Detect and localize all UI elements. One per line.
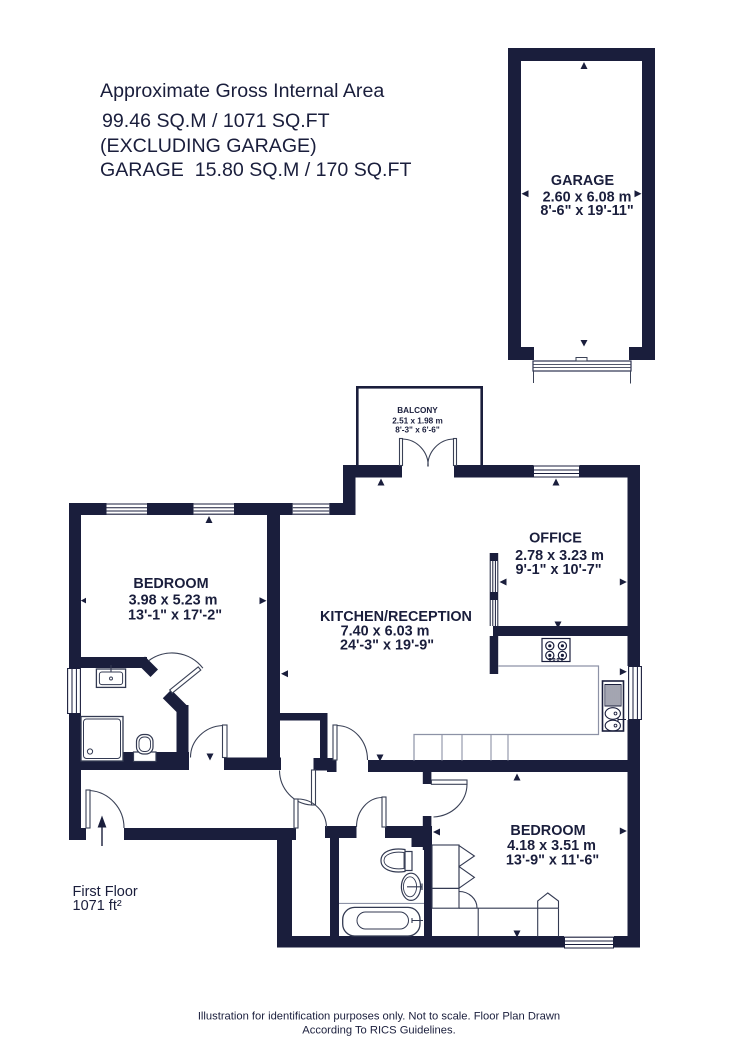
svg-text:1071 ft²: 1071 ft² bbox=[73, 898, 122, 914]
svg-text:13'-1" x 17'-2": 13'-1" x 17'-2" bbox=[128, 608, 222, 624]
svg-text:OFFICE: OFFICE bbox=[529, 531, 582, 547]
svg-text:Illustration for identificatio: Illustration for identification purposes… bbox=[198, 1011, 560, 1023]
svg-text:BALCONY: BALCONY bbox=[397, 406, 438, 415]
svg-text:According To RICS Guidelines.: According To RICS Guidelines. bbox=[302, 1025, 455, 1037]
svg-text:9'-1" x 10'-7": 9'-1" x 10'-7" bbox=[515, 562, 601, 578]
svg-text:(EXCLUDING GARAGE): (EXCLUDING GARAGE) bbox=[100, 135, 317, 157]
svg-text:24'-3" x 19'-9": 24'-3" x 19'-9" bbox=[340, 638, 434, 654]
svg-text:GARAGE: GARAGE bbox=[551, 173, 615, 189]
svg-text:8'-6" x 19'-11": 8'-6" x 19'-11" bbox=[540, 203, 633, 219]
svg-text:13'-9" x 11'-6": 13'-9" x 11'-6" bbox=[506, 853, 599, 869]
svg-text:BEDROOM: BEDROOM bbox=[510, 823, 585, 839]
svg-text:GARAGE 15.80 SQ.M / 170 SQ.FT: GARAGE 15.80 SQ.M / 170 SQ.FT bbox=[100, 159, 411, 181]
svg-text:3.98 x 5.23 m: 3.98 x 5.23 m bbox=[129, 593, 218, 609]
svg-text:99.46 SQ.M / 1071 SQ.FT: 99.46 SQ.M / 1071 SQ.FT bbox=[102, 110, 330, 132]
svg-text:Approximate Gross Internal Are: Approximate Gross Internal Area bbox=[100, 80, 384, 102]
svg-text:2.51 x 1.98 m: 2.51 x 1.98 m bbox=[392, 417, 443, 426]
svg-text:BEDROOM: BEDROOM bbox=[133, 576, 208, 592]
svg-text:8'-3" x 6'-6": 8'-3" x 6'-6" bbox=[395, 426, 440, 435]
